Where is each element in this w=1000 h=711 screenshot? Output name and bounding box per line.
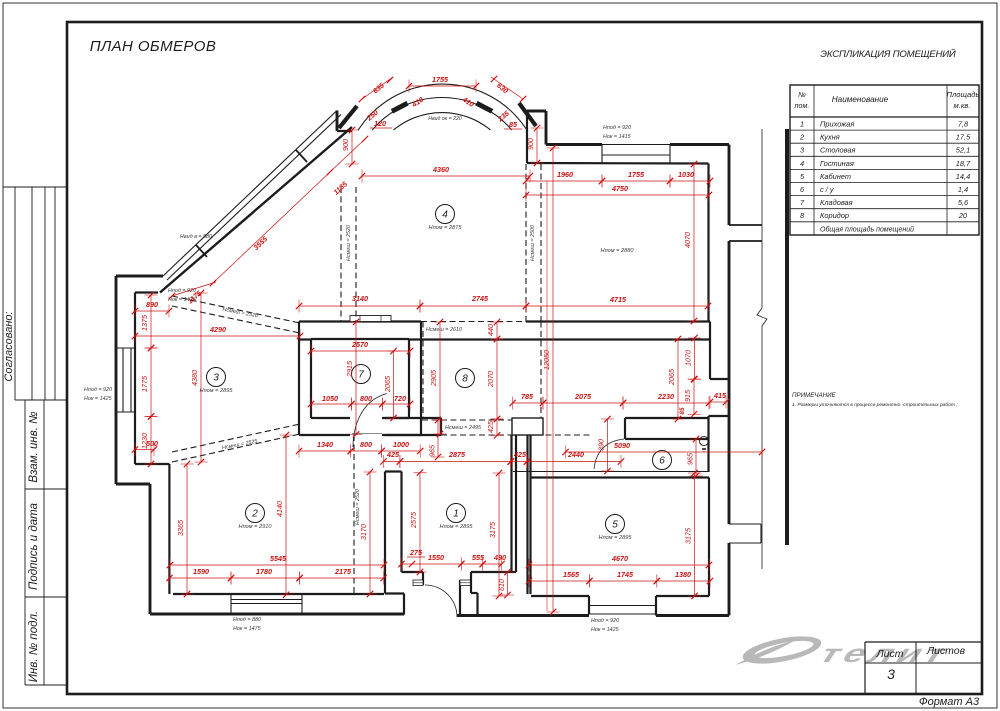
- svg-text:900: 900: [526, 138, 535, 150]
- svg-text:965: 965: [428, 444, 437, 457]
- svg-text:Кабинет: Кабинет: [820, 172, 851, 181]
- svg-text:5090: 5090: [614, 441, 630, 450]
- svg-text:1050: 1050: [322, 394, 338, 403]
- svg-text:4: 4: [800, 159, 804, 168]
- svg-text:1070: 1070: [684, 350, 693, 366]
- svg-text:900: 900: [341, 139, 350, 151]
- svg-text:2570: 2570: [351, 340, 368, 349]
- svg-text:Hпом = 2910: Hпом = 2910: [239, 524, 273, 530]
- svg-text:20: 20: [958, 211, 968, 220]
- svg-text:4140: 4140: [275, 501, 284, 517]
- svg-text:3175: 3175: [684, 527, 693, 544]
- svg-text:2065: 2065: [383, 375, 392, 393]
- svg-text:1. Размеры уточняются в процес: 1. Размеры уточняются в процессе ремонтн…: [792, 402, 958, 408]
- svg-text:Кладовая: Кладовая: [820, 198, 853, 207]
- svg-text:425: 425: [486, 420, 495, 433]
- svg-text:Взам. инв. №: Взам. инв. №: [28, 411, 40, 483]
- svg-text:915: 915: [683, 389, 692, 402]
- svg-text:Формат А3: Формат А3: [919, 696, 980, 708]
- svg-text:Hсмеш = 2610: Hсмеш = 2610: [426, 327, 462, 333]
- svg-text:Hок = 1425: Hок = 1425: [84, 396, 113, 402]
- svg-text:Гостиная: Гостиная: [820, 159, 854, 168]
- svg-text:Прихожая: Прихожая: [820, 120, 854, 129]
- svg-text:85: 85: [509, 120, 518, 129]
- svg-text:2440: 2440: [567, 450, 584, 459]
- svg-text:6: 6: [659, 456, 665, 467]
- svg-text:Hвид ок = 220: Hвид ок = 220: [428, 116, 462, 122]
- svg-text:1755: 1755: [628, 170, 645, 179]
- svg-text:Лист: Лист: [875, 648, 903, 660]
- svg-text:965: 965: [686, 452, 695, 465]
- svg-text:490: 490: [493, 553, 506, 562]
- svg-text:800: 800: [360, 394, 372, 403]
- svg-text:1775: 1775: [140, 375, 149, 392]
- svg-text:555: 555: [472, 553, 485, 562]
- svg-text:Столовая: Столовая: [820, 146, 855, 155]
- svg-text:с / у: с / у: [820, 185, 835, 194]
- svg-text:4715: 4715: [609, 295, 627, 304]
- svg-text:2915: 2915: [345, 360, 354, 378]
- svg-text:890: 890: [146, 300, 158, 309]
- svg-text:1590: 1590: [193, 567, 209, 576]
- svg-text:Наименование: Наименование: [832, 95, 889, 104]
- svg-text:ЭКСПЛИКАЦИЯ ПОМЕЩЕНИЙ: ЭКСПЛИКАЦИЯ ПОМЕЩЕНИЙ: [820, 48, 955, 60]
- svg-text:17,5: 17,5: [956, 133, 971, 142]
- svg-text:3: 3: [213, 373, 219, 384]
- svg-text:Hпом = 2875: Hпом = 2875: [429, 225, 463, 231]
- svg-text:2875: 2875: [448, 450, 466, 459]
- svg-text:1780: 1780: [256, 567, 272, 576]
- svg-text:2745: 2745: [471, 294, 489, 303]
- svg-text:800: 800: [360, 440, 372, 449]
- svg-text:4670: 4670: [611, 554, 628, 563]
- svg-text:2: 2: [799, 133, 804, 142]
- svg-text:Hпод = 920: Hпод = 920: [84, 387, 112, 393]
- svg-text:2070: 2070: [486, 371, 495, 388]
- svg-text:440: 440: [486, 324, 495, 336]
- svg-text:Общая площадь помещений: Общая площадь помещений: [820, 226, 914, 234]
- svg-text:3170: 3170: [359, 524, 368, 540]
- svg-text:Площадь: Площадь: [947, 90, 980, 99]
- svg-text:1380: 1380: [675, 570, 691, 579]
- svg-text:Инв. № подл.: Инв. № подл.: [28, 611, 40, 682]
- svg-text:№: №: [798, 90, 806, 99]
- svg-text:Hпом = 2880: Hпом = 2880: [601, 248, 635, 254]
- svg-text:Hсмеш = 2495: Hсмеш = 2495: [445, 425, 482, 431]
- svg-text:Hпод = 920: Hпод = 920: [603, 125, 631, 131]
- svg-text:500: 500: [146, 439, 158, 448]
- svg-text:425: 425: [386, 450, 400, 459]
- svg-text:425: 425: [513, 450, 527, 459]
- svg-text:4380: 4380: [190, 370, 199, 386]
- svg-text:1,4: 1,4: [958, 185, 968, 194]
- svg-text:2075: 2075: [574, 392, 592, 401]
- svg-text:1565: 1565: [563, 570, 580, 579]
- svg-text:Hпом = 2895: Hпом = 2895: [200, 388, 234, 394]
- svg-text:720: 720: [394, 394, 406, 403]
- svg-text:Hсмеш = 2520: Hсмеш = 2520: [346, 225, 352, 261]
- svg-text:ПРИМЕЧАНИЕ: ПРИМЕЧАНИЕ: [792, 392, 837, 399]
- svg-text:415: 415: [713, 391, 727, 400]
- svg-text:1550: 1550: [428, 553, 444, 562]
- svg-text:Hвид в = 580: Hвид в = 580: [180, 234, 212, 240]
- svg-text:Коридор: Коридор: [820, 211, 849, 220]
- svg-text:4750: 4750: [611, 184, 628, 193]
- svg-text:3140: 3140: [352, 294, 368, 303]
- svg-text:610: 610: [497, 579, 506, 591]
- svg-text:120: 120: [374, 119, 386, 128]
- svg-text:пом.: пом.: [795, 101, 810, 110]
- svg-text:1745: 1745: [617, 570, 634, 579]
- svg-text:Согласовано:: Согласовано:: [3, 311, 15, 381]
- svg-text:Hпод = 880: Hпод = 880: [233, 617, 261, 623]
- svg-text:2905: 2905: [429, 369, 438, 387]
- svg-text:4: 4: [442, 210, 448, 221]
- svg-text:1960: 1960: [557, 170, 573, 179]
- svg-text:14,4: 14,4: [956, 172, 970, 181]
- svg-text:390: 390: [597, 439, 606, 451]
- svg-text:Hок = 1415: Hок = 1415: [603, 134, 632, 140]
- svg-text:3175: 3175: [488, 521, 497, 538]
- svg-text:1340: 1340: [317, 440, 333, 449]
- svg-text:12050: 12050: [542, 350, 551, 370]
- svg-text:4070: 4070: [683, 232, 692, 248]
- svg-text:Листов: Листов: [926, 645, 966, 657]
- svg-text:1755: 1755: [432, 75, 449, 84]
- svg-text:1375: 1375: [140, 314, 149, 331]
- svg-text:Hок = 1425: Hок = 1425: [591, 627, 620, 633]
- svg-text:1: 1: [453, 509, 459, 520]
- svg-text:3365: 3365: [176, 519, 185, 536]
- svg-text:2065: 2065: [667, 368, 676, 386]
- svg-text:5: 5: [612, 520, 618, 531]
- svg-text:2175: 2175: [334, 567, 352, 576]
- svg-text:1030: 1030: [678, 170, 694, 179]
- svg-text:Hсмеш = 2520: Hсмеш = 2520: [355, 489, 361, 525]
- svg-text:Hпод = 920: Hпод = 920: [591, 618, 619, 624]
- svg-text:2230: 2230: [657, 392, 674, 401]
- svg-text:2575: 2575: [409, 511, 418, 529]
- svg-text:Hпом = 2895: Hпом = 2895: [599, 535, 633, 541]
- svg-text:Hсмеш = 2500: Hсмеш = 2500: [530, 225, 536, 261]
- svg-text:ПЛАН ОБМЕРОВ: ПЛАН ОБМЕРОВ: [90, 38, 217, 55]
- svg-text:м.кв.: м.кв.: [954, 101, 971, 110]
- svg-text:52,1: 52,1: [956, 146, 970, 155]
- svg-text:275: 275: [409, 548, 423, 557]
- svg-text:3: 3: [887, 666, 895, 682]
- svg-text:1: 1: [800, 120, 804, 129]
- svg-text:1000: 1000: [393, 440, 409, 449]
- svg-text:5,6: 5,6: [958, 198, 969, 207]
- svg-text:Hпом = 2895: Hпом = 2895: [440, 524, 474, 530]
- svg-text:4360: 4360: [432, 165, 449, 174]
- svg-text:5545: 5545: [270, 554, 287, 563]
- svg-text:7,8: 7,8: [958, 120, 969, 129]
- svg-text:4290: 4290: [209, 325, 226, 334]
- svg-text:Кухня: Кухня: [820, 133, 840, 142]
- svg-text:785: 785: [521, 392, 534, 401]
- svg-text:18,7: 18,7: [956, 159, 971, 168]
- svg-text:2: 2: [251, 509, 258, 520]
- svg-text:7: 7: [358, 370, 364, 381]
- svg-text:8: 8: [462, 374, 468, 385]
- svg-text:Hок = 1475: Hок = 1475: [233, 626, 262, 632]
- svg-text:85: 85: [679, 407, 686, 414]
- svg-text:Подпись и дата: Подпись и дата: [28, 503, 40, 590]
